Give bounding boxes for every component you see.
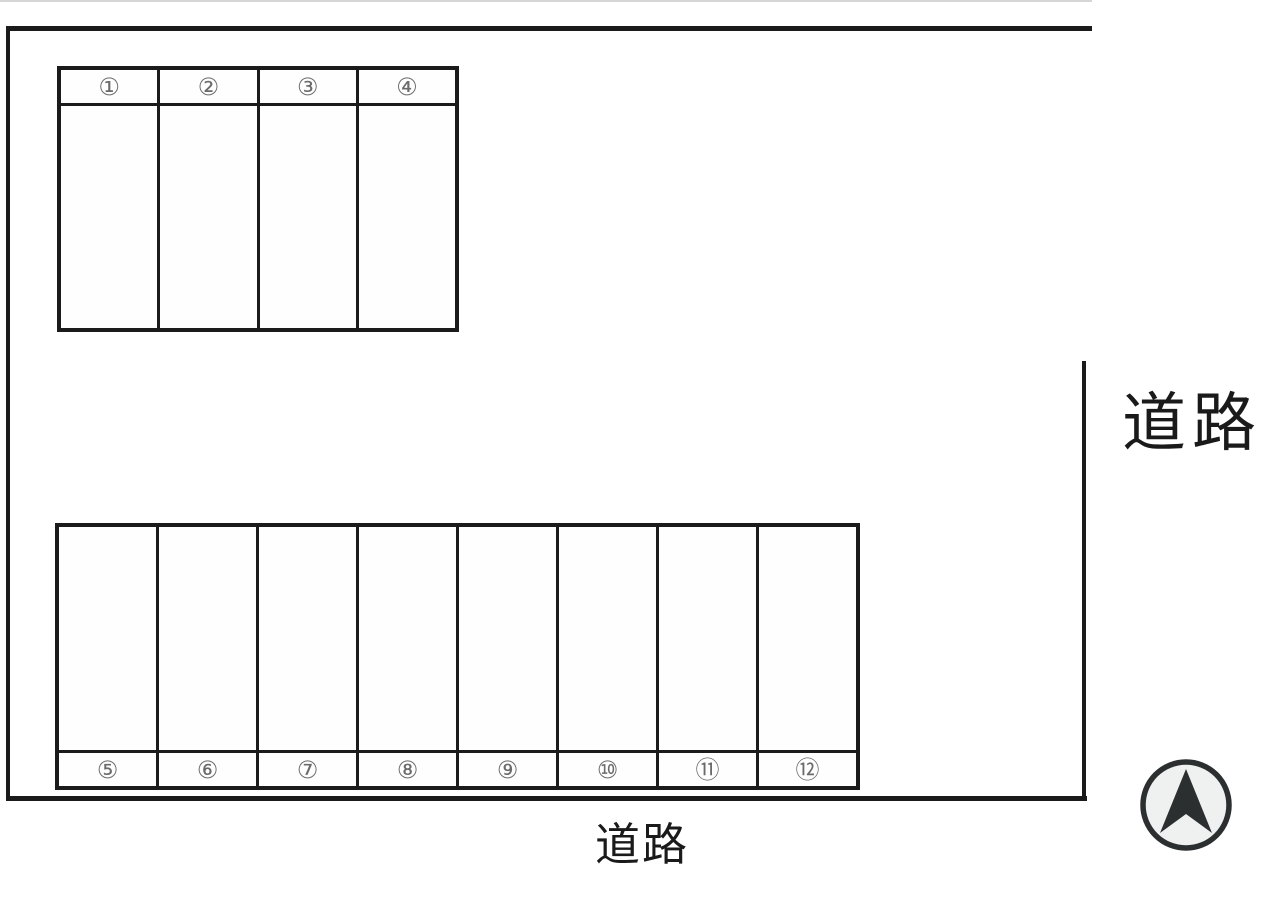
parking-space-4-number: ④ bbox=[359, 70, 455, 103]
parking-space-10-number: ⑩ bbox=[559, 753, 656, 786]
road-label-bottom: 道路 bbox=[595, 822, 689, 867]
parking-space-11-number: ⑪ bbox=[659, 753, 756, 786]
space-number-label: ⑨ bbox=[497, 758, 519, 782]
parking-diagram: ① ② ③ ④ ⑤ ⑥ ⑦ ⑧ ⑨ ⑩ ⑪ ⑫ 道路 道路 bbox=[0, 0, 1280, 905]
parking-space-5-number: ⑤ bbox=[59, 753, 156, 786]
scan-artifact-line bbox=[0, 0, 1092, 2]
parking-block-top: ① ② ③ ④ bbox=[57, 66, 459, 332]
parking-space-12-area bbox=[759, 527, 856, 750]
parking-space-12-number: ⑫ bbox=[759, 753, 856, 786]
space-number-label: ⑤ bbox=[97, 758, 119, 782]
parking-space-2-number: ② bbox=[160, 70, 256, 103]
parking-space-9-area bbox=[459, 527, 556, 750]
parking-space-7-area bbox=[259, 527, 356, 750]
space-number-label: ④ bbox=[396, 75, 418, 99]
parking-space-3-area bbox=[260, 106, 356, 328]
parking-space-3-number: ③ bbox=[260, 70, 356, 103]
space-number-label: ⑩ bbox=[597, 758, 619, 782]
space-number-label: ⑫ bbox=[796, 758, 820, 782]
space-number-label: ① bbox=[98, 75, 120, 99]
parking-space-11-area bbox=[659, 527, 756, 750]
parking-space-6-area bbox=[159, 527, 256, 750]
parking-space-1-number: ① bbox=[61, 70, 157, 103]
parking-space-4-area bbox=[359, 106, 455, 328]
parking-space-8-number: ⑧ bbox=[359, 753, 456, 786]
parking-space-7-number: ⑦ bbox=[259, 753, 356, 786]
space-number-label: ② bbox=[198, 75, 220, 99]
road-label-right: 道路 bbox=[1122, 392, 1262, 456]
parking-space-10-area bbox=[559, 527, 656, 750]
parking-space-6-number: ⑥ bbox=[159, 753, 256, 786]
space-number-label: ⑦ bbox=[297, 758, 319, 782]
space-number-label: ⑪ bbox=[696, 758, 720, 782]
parking-space-1-area bbox=[61, 106, 157, 328]
north-arrow-icon bbox=[1138, 757, 1234, 853]
parking-space-8-area bbox=[359, 527, 456, 750]
space-number-label: ③ bbox=[297, 75, 319, 99]
north-compass bbox=[1138, 757, 1234, 853]
boundary-left bbox=[6, 26, 10, 801]
parking-space-9-number: ⑨ bbox=[459, 753, 556, 786]
boundary-right bbox=[1082, 361, 1086, 801]
parking-block-bottom: ⑤ ⑥ ⑦ ⑧ ⑨ ⑩ ⑪ ⑫ bbox=[55, 523, 860, 790]
parking-space-5-area bbox=[59, 527, 156, 750]
boundary-top bbox=[6, 26, 1092, 31]
space-number-label: ⑥ bbox=[197, 758, 219, 782]
space-number-label: ⑧ bbox=[397, 758, 419, 782]
parking-space-2-area bbox=[160, 106, 256, 328]
boundary-bottom bbox=[6, 796, 1087, 801]
